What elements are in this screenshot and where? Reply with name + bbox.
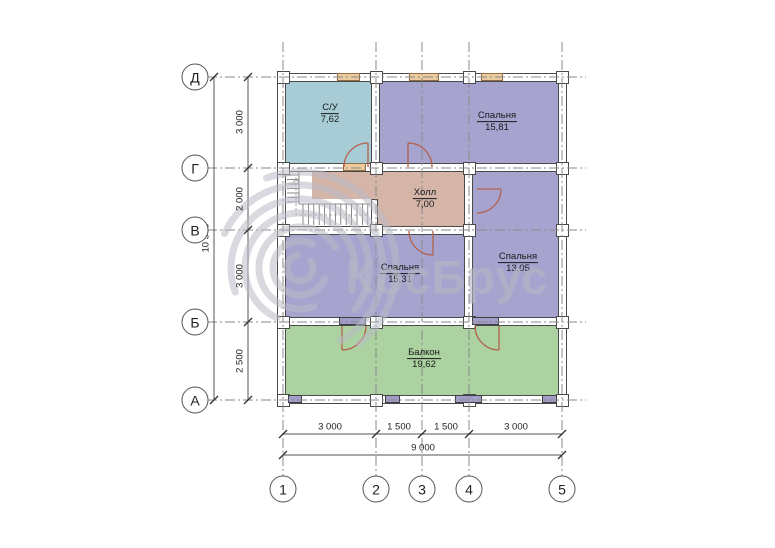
column-symbol <box>370 71 383 84</box>
row-bubble-v: В <box>182 217 209 244</box>
dim-vertical-segment-3: 3 000 <box>235 264 246 288</box>
room-name: Спальня <box>498 251 538 263</box>
room-area: 7,00 <box>413 200 437 211</box>
room-label-bedroom-left: Спальня 15,31 <box>380 262 420 286</box>
wall-row-b <box>277 317 567 326</box>
column-symbol <box>556 162 569 175</box>
column-symbol <box>277 316 290 329</box>
room-name: Спальня <box>380 262 420 274</box>
row-bubble-a: А <box>182 387 209 414</box>
column-symbol <box>556 224 569 237</box>
dim-horizontal-segment-3: 1 500 <box>434 422 458 433</box>
column-symbol <box>556 316 569 329</box>
col-bubble-1: 1 <box>270 476 297 503</box>
window-symbol <box>481 73 503 81</box>
column-symbol <box>463 162 476 175</box>
dim-vertical-segment-4: 2 500 <box>235 349 246 373</box>
room-bedroom-left-fill <box>286 235 464 317</box>
window-symbol <box>337 73 360 81</box>
room-name: Балкон <box>407 347 441 359</box>
room-label-bedroom-top: Спальня 15,81 <box>477 110 517 134</box>
room-label-balcony: Балкон 19,62 <box>407 347 441 371</box>
window-symbol <box>385 395 400 403</box>
column-symbol <box>277 71 290 84</box>
dim-horizontal-segment-2: 1 500 <box>387 422 411 433</box>
column-symbol <box>556 394 569 407</box>
room-name: С/У <box>321 102 339 114</box>
window-symbol <box>542 395 557 403</box>
room-label-bedroom-right: Спальня 13,05 <box>498 251 538 275</box>
room-area: 19,62 <box>407 360 441 371</box>
room-area: 15,81 <box>477 123 517 134</box>
column-symbol <box>370 224 383 237</box>
dim-horizontal-segment-1: 3 000 <box>318 422 342 433</box>
room-area: 7,62 <box>321 115 340 126</box>
window-symbol <box>339 317 366 325</box>
column-symbol <box>370 394 383 407</box>
window-symbol <box>472 317 499 325</box>
wall-col-1 <box>277 73 286 404</box>
dim-horizontal-total: 9 000 <box>411 443 435 454</box>
room-label-bathroom: С/У 7,62 <box>321 102 340 126</box>
dim-vertical-segment-2: 2 000 <box>235 187 246 211</box>
room-name: Холл <box>413 187 437 199</box>
column-symbol <box>370 316 383 329</box>
wall-col-2-upper <box>371 73 380 172</box>
room-area: 13,05 <box>498 264 538 275</box>
window-symbol <box>288 395 302 403</box>
column-symbol <box>556 71 569 84</box>
window-symbol <box>409 73 439 81</box>
window-symbol <box>455 395 482 403</box>
column-symbol <box>277 162 290 175</box>
col-bubble-5: 5 <box>549 476 576 503</box>
column-symbol <box>463 71 476 84</box>
floor-plan: С/У 7,62 Спальня 15,81 Холл 7,00 Спальня… <box>0 0 775 548</box>
window-symbol <box>343 163 366 171</box>
wall-col-4 <box>464 163 473 326</box>
dim-horizontal-segment-4: 3 000 <box>504 422 528 433</box>
room-label-hall: Холл 7,00 <box>413 187 437 211</box>
dim-vertical-segment-1: 3 000 <box>235 110 246 134</box>
room-area: 15,31 <box>380 275 420 286</box>
room-bedroom-top-fill <box>380 82 558 163</box>
row-bubble-b: Б <box>182 309 209 336</box>
wall-col-5 <box>558 73 567 404</box>
wall-row-g <box>277 163 567 172</box>
column-symbol <box>463 224 476 237</box>
row-bubble-d: Д <box>182 64 209 91</box>
col-bubble-3: 3 <box>409 476 436 503</box>
room-bedroom-right-fill <box>473 172 558 317</box>
col-bubble-4: 4 <box>456 476 483 503</box>
row-bubble-g: Г <box>182 155 209 182</box>
wall-row-a <box>277 395 567 404</box>
column-symbol <box>277 224 290 237</box>
column-symbol <box>370 162 383 175</box>
col-bubble-2: 2 <box>363 476 390 503</box>
room-name: Спальня <box>477 110 517 122</box>
